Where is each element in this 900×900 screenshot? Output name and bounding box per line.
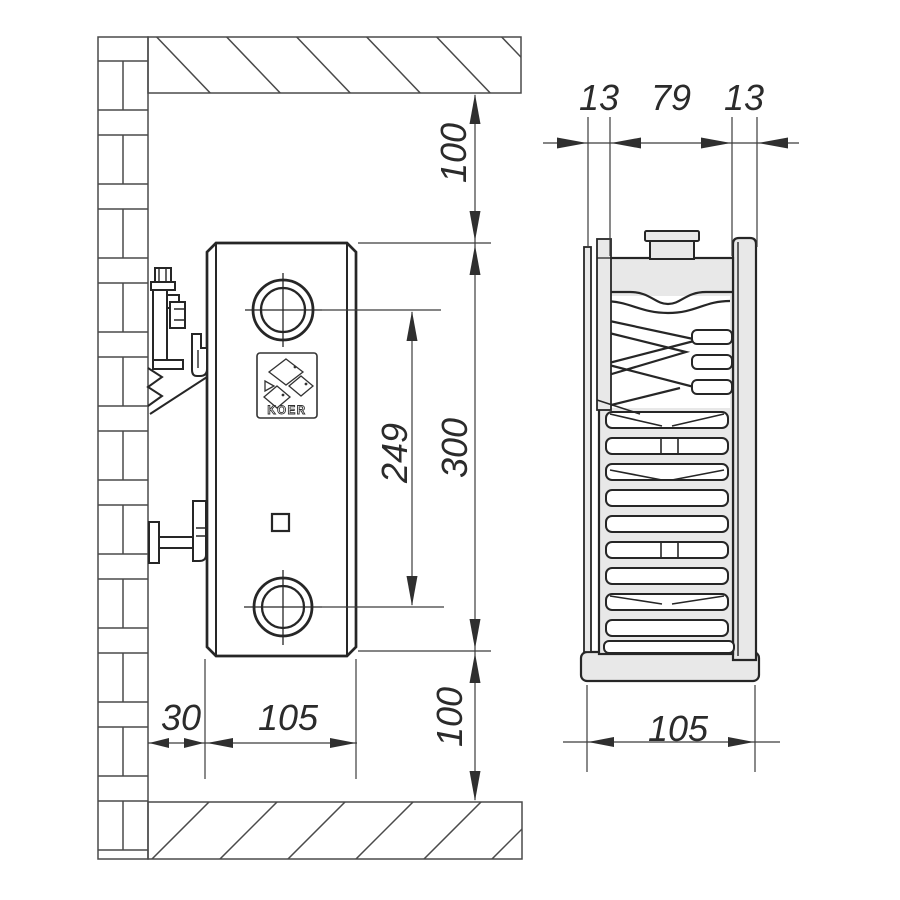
brand-logo: KOER — [257, 353, 317, 418]
bracket-nut — [170, 302, 185, 328]
bracket-bolt — [155, 268, 171, 282]
dim-label-depth: 105 — [258, 697, 319, 738]
bracket-flange — [151, 282, 175, 290]
fin-slots-upper — [692, 330, 732, 394]
bracket-zigzag — [148, 368, 162, 406]
top-stub-cap — [645, 231, 699, 241]
radiator-front-view — [581, 231, 759, 681]
floor-hatch — [145, 796, 555, 866]
wall-section — [98, 37, 148, 859]
dim-label-top-clearance: 100 — [433, 123, 474, 183]
dim-label-axis-spacing: 249 — [374, 423, 415, 484]
radiator-side-body — [207, 243, 356, 656]
ceiling-outline — [148, 37, 521, 93]
dim-label-width: 105 — [648, 708, 709, 749]
floor-outline — [148, 802, 522, 859]
bracket-channel — [193, 501, 206, 561]
back-panel — [733, 238, 756, 660]
dim-label-bottom-clearance: 100 — [429, 687, 470, 747]
drawing-svg: KOER — [0, 0, 900, 900]
lower-wall-bracket — [149, 501, 206, 563]
radiator-side-view: KOER — [207, 243, 356, 656]
dim-label-wall-offset: 30 — [161, 697, 201, 738]
front-skin — [584, 247, 591, 652]
bracket-foot — [153, 360, 183, 369]
bracket-rod — [159, 537, 195, 548]
wall-brick-pattern — [98, 61, 148, 850]
ceiling-section — [148, 30, 560, 98]
bracket-body — [153, 290, 167, 366]
logo-text: KOER — [267, 405, 306, 417]
inner-front-panel — [597, 239, 611, 410]
dim-label-core: 79 — [651, 77, 691, 118]
dim-label-height: 300 — [434, 418, 475, 478]
top-stub — [650, 240, 694, 259]
ceiling-hatch — [150, 30, 560, 98]
dim-label-back-panel: 13 — [724, 77, 764, 118]
dim-label-front-panel: 13 — [579, 77, 619, 118]
bracket-brace — [150, 377, 207, 414]
vent-square — [272, 514, 289, 531]
floor-section — [145, 796, 555, 866]
upper-wall-bracket — [148, 268, 207, 414]
technical-drawing: KOER — [0, 0, 900, 900]
bracket-wall-plate — [149, 522, 159, 563]
bracket-hook — [192, 334, 207, 376]
